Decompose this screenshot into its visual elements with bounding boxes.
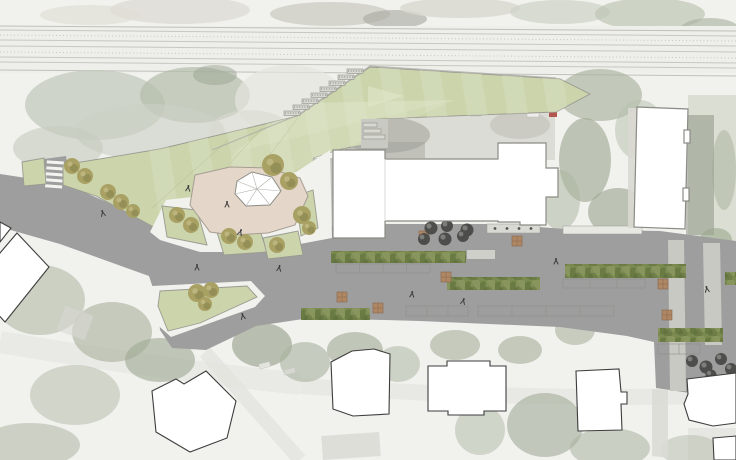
hedge-row	[565, 264, 686, 278]
aerial-right-building-yard	[686, 95, 736, 260]
site-plan-canvas	[0, 0, 736, 460]
balcony	[684, 130, 690, 143]
existing-building	[428, 361, 506, 415]
hedge-row	[301, 308, 370, 320]
lawn-stair-notch	[361, 119, 388, 148]
existing-building	[684, 373, 736, 426]
balcony	[683, 188, 689, 201]
existing-building	[713, 436, 736, 460]
green-verge-triangle	[22, 158, 46, 186]
existing-building	[576, 369, 627, 431]
site-plan-drawing	[0, 0, 736, 460]
hedge-row	[447, 277, 540, 290]
hedge-row	[725, 272, 736, 285]
residential-slab-building	[634, 107, 688, 229]
existing-building	[331, 349, 390, 416]
hedge-row	[331, 251, 466, 263]
hedge-row	[658, 328, 723, 342]
paving-inlay	[467, 250, 495, 259]
footpath-south	[652, 389, 668, 458]
